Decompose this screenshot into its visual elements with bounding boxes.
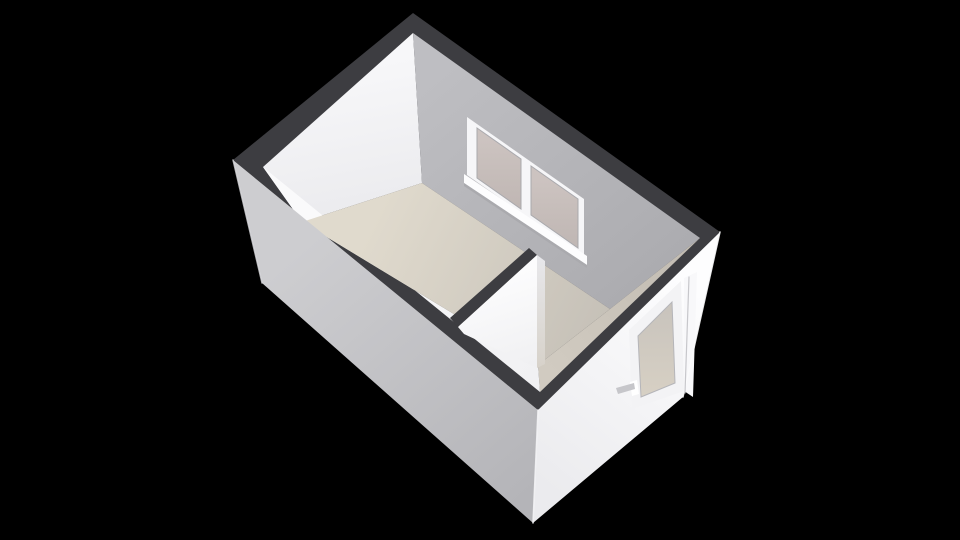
partition-wall-end: [537, 255, 545, 368]
floorplan-3d-view: [0, 0, 960, 540]
floorplan-canvas: [0, 0, 960, 540]
